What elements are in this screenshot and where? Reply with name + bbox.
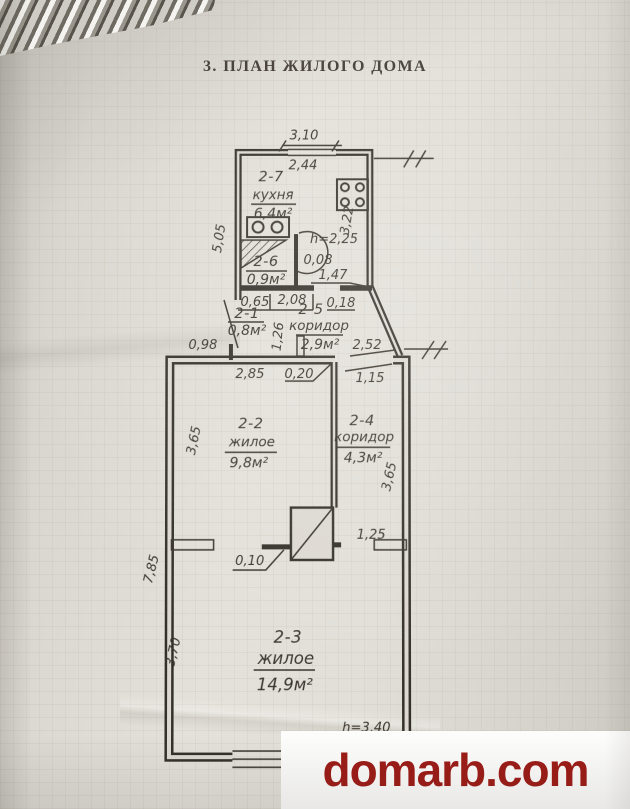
dim-room22-width: 2,85 [235, 367, 264, 382]
room-2-7-id: 2-7 [259, 169, 284, 185]
dim-seg-018: 0,18 [327, 296, 356, 311]
room-2-3-area: 14,9м² [257, 675, 313, 694]
watermark-banner: domarb.com [281, 731, 630, 809]
room-2-6-id: 2-6 [253, 254, 278, 270]
room-2-2-area: 9,8м² [230, 455, 269, 471]
dim-kitchen-inner-width: 2,44 [289, 158, 318, 173]
dim-ext-098: 0,98 [188, 338, 217, 353]
dim-door-115: 1,15 [356, 371, 385, 386]
dim-wall-020: 0,20 [285, 367, 314, 382]
room-2-7-area: 6,4м² [254, 206, 293, 222]
dim-corridor-126: 1,26 [269, 321, 287, 351]
dim-stub-010: 0,10 [235, 554, 264, 569]
room-2-4-area: 4,3м² [344, 450, 383, 466]
dim-left-total: 7,85 [141, 553, 163, 585]
room-2-5-name: коридор [289, 319, 349, 334]
room-2-4-id: 2-4 [349, 413, 374, 429]
dim-door-147: 1,47 [319, 268, 349, 283]
dim-room22-height: 3,65 [184, 425, 205, 457]
masonry-stove-icon [291, 508, 333, 560]
dim-kitchen-left-height: 5,05 [210, 223, 229, 254]
dim-diag-252: 2,52 [353, 338, 382, 353]
room-2-1-area: 0,8м² [228, 323, 267, 339]
dim-top-width: 3,10 [290, 129, 319, 144]
room-2-2-name: жилое [228, 435, 275, 450]
photographed-floor-plan-sheet: 3. ПЛАН ЖИЛОГО ДОМА [0, 0, 630, 809]
room-2-3-name: жилое [257, 649, 315, 668]
room-2-2-id: 2-2 [238, 416, 263, 432]
watermark-text: domarb.com [322, 743, 588, 797]
room-2-4-name: коридор [334, 430, 394, 445]
dim-seg-065: 0,65 [241, 295, 270, 310]
room-2-3-id: 2-3 [274, 628, 303, 647]
dim-stub-125: 1,25 [357, 528, 386, 543]
room-2-5-area: 2,9м² [301, 337, 340, 353]
room-2-7-name: кухня [253, 188, 294, 203]
room-2-6-area: 0,9м² [247, 272, 286, 288]
dim-wall-008: 0,08 [304, 253, 333, 268]
floor-plan-drawing: 2-7 кухня 6,4м² h=2,25 2-6 0,9м² 2-1 0,8… [0, 2, 630, 809]
dim-seg-208: 2,08 [278, 293, 307, 308]
